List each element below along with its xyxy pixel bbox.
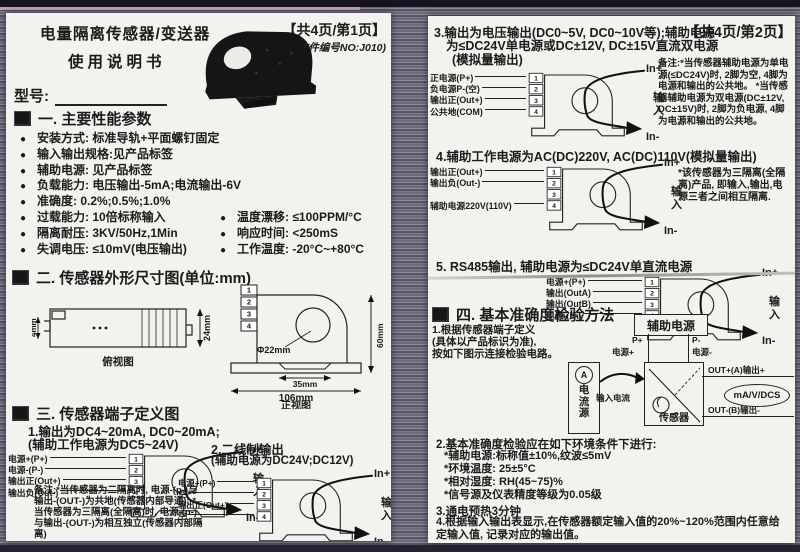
in-minus-label: In- <box>646 131 659 143</box>
accuracy-check-circuit: 辅助电源 P+ 电源+ P- 电源- A 电流源 输入电流 <box>568 314 794 432</box>
sensor-symbol-box: 传感器 <box>644 362 704 426</box>
pin-number: 1 <box>650 280 654 287</box>
terminal-row: 辅助电源220V(110V) <box>430 200 518 211</box>
bullet-icon: ● <box>220 229 237 240</box>
model-label: 型号: <box>14 85 49 106</box>
dim-4mm: 4mm <box>32 318 38 337</box>
bullet-icon: ● <box>20 134 37 145</box>
terminal-diagram-3: 正电源(P+) 负电源P-(空) 输出正(Out+) 公共地(COM) 1 2 … <box>430 68 674 154</box>
param-row: ●隔离耐压: 3KV/50Hz,1Min●响应时间: <250mS <box>20 224 388 240</box>
input-current-arrow <box>598 364 644 390</box>
check-condition: *信号源及仪表精度等级为0.05级 <box>444 489 611 502</box>
performance-parameter-list: ●安装方式: 标准导轨+平面螺钉固定 ●输入输出规格:见产品标签 ●辅助电源: … <box>20 129 388 255</box>
scan-pink-streak <box>0 7 360 10</box>
terminal-row: 输出正(Out+) <box>178 499 228 510</box>
section-marker-icon <box>12 270 29 285</box>
pin-number: 2 <box>552 181 556 188</box>
circuit-lead-left <box>648 334 649 362</box>
pin-number: 1 <box>262 481 266 488</box>
circuit-lead-right <box>688 334 689 362</box>
manual-page-1: 电量隔离传感器/变送器 使用说明书 【共4页/第1页】 (文件编号NO:J010… <box>6 13 391 541</box>
terminal-row: 空 <box>178 488 228 499</box>
manual-page-2: 3.输出为电压输出(DC0~5V, DC0~10V等);辅助电源 为≤DC24V… <box>428 16 795 543</box>
bullet-icon: ● <box>20 166 37 177</box>
param-row: ●准确度: 0.2%;0.5%;1.0% <box>20 192 388 208</box>
sensor-outline-drawing: 1 2 3 4 <box>500 68 650 154</box>
front-view-caption: 正视图 <box>281 399 311 409</box>
pin-number: 3 <box>650 302 654 309</box>
ammeter-icon: A <box>575 366 593 384</box>
param-text: 准确度: 0.2%;0.5%;1.0% <box>37 192 170 209</box>
scanned-manual: 电量隔离传感器/变送器 使用说明书 【共4页/第1页】 (文件编号NO:J010… <box>0 0 800 552</box>
pin-number: 2 <box>247 298 251 307</box>
param-row: ●安装方式: 标准导轨+平面螺钉固定 <box>20 129 388 145</box>
check-condition: *辅助电源:标称值±10%,纹波≤5mV <box>444 450 611 463</box>
in-minus-label: In- <box>664 225 677 237</box>
aux-power-box: 辅助电源 <box>634 314 708 336</box>
sensor-figure: 1 2 3 4 In+ 输入 In- <box>518 162 692 248</box>
wire-arrowhead <box>626 121 642 135</box>
param-row: ●输入输出规格:见产品标签 <box>20 145 388 161</box>
pin-number: 3 <box>534 98 538 105</box>
terminal-label: 电源+(P+) <box>178 477 215 489</box>
terminal-label: 公共地(COM) <box>430 105 483 118</box>
param-text: 辅助电源: 见产品标签 <box>37 161 152 178</box>
section3v-title-line3: (模拟量输出) <box>452 49 523 68</box>
check-step1-line3: 按如下图示连接检验电路。 <box>432 348 558 360</box>
input-label: 输入 <box>381 497 391 522</box>
param-text: 过载能力: 10倍标称输入 <box>37 208 220 225</box>
p-plus-label: P+ <box>632 335 643 345</box>
in-plus-label: In+ <box>374 468 390 480</box>
sensor-body <box>260 480 353 541</box>
param-text: 工作温度: -20°C~+80°C <box>237 240 364 257</box>
top-view-caption: 俯视图 <box>102 355 134 368</box>
terminal-label: 输出负(Out-) <box>430 176 480 189</box>
pin-number: 1 <box>247 286 251 295</box>
param-text: 失调电压: ≤10mV(电压输出) <box>37 240 220 257</box>
param-row: ●过载能力: 10倍标称输入●温度漂移: ≤100PPM/°C <box>20 208 388 224</box>
pin-number: 3 <box>247 310 251 319</box>
pin-number: 2 <box>650 291 654 298</box>
diagram2-subtitle: (辅助电源为DC24V;DC12V) <box>211 452 354 468</box>
section-marker-icon <box>14 111 31 126</box>
out-plus-label: OUT+(A)输出+ <box>708 364 765 376</box>
terminal-row: 输出负(Out-) <box>430 177 518 188</box>
sensor-figure: 1 2 3 4 In+ 输入 In- <box>500 68 674 154</box>
bullet-icon: ● <box>20 213 37 224</box>
bullet-icon: ● <box>20 197 37 208</box>
current-wire <box>603 165 662 222</box>
check-step1-line2: (具体以产品标识为准), <box>432 336 558 348</box>
dim-60mm: 60mm <box>375 323 385 348</box>
bullet-icon: ● <box>20 245 37 256</box>
terminal-diagram-4: 输出正(Out+) 输出负(Out-) 辅助电源220V(110V) 1 2 3… <box>430 162 692 248</box>
p-plus-sub-label: 电源+ <box>612 346 634 358</box>
dim-35mm: 35mm <box>293 379 318 389</box>
dimension-drawing-front-view: 1 2 3 4 Φ22mm 60mm 35mm 106mm 正视图 <box>221 281 391 409</box>
dim-24mm: 24mm <box>202 315 212 341</box>
pin-number: 4 <box>262 514 266 521</box>
output-line-minus <box>702 416 794 417</box>
param-text: 输入输出规格:见产品标签 <box>37 145 173 162</box>
pin-number: 3 <box>262 503 266 510</box>
input-current-label: 输入电流 <box>596 392 630 404</box>
bullet-icon: ● <box>220 213 237 224</box>
p-minus-sub-label: 电源- <box>692 346 712 358</box>
bullet-icon: ● <box>20 181 37 192</box>
hole-diameter-label: Φ22mm <box>257 345 290 355</box>
param-row: ●负载能力: 电压输出-5mA;电流输出-6V <box>20 176 388 192</box>
section2-heading: 二. 传感器外形尺寸图(单位:mm) <box>36 267 251 288</box>
check-condition: *环境温度: 25±5°C <box>444 463 611 476</box>
pin-number: 1 <box>134 457 138 464</box>
bullet-icon: ● <box>20 229 37 240</box>
bullet-icon: ● <box>220 245 237 256</box>
check-step1-line1: 1.根据传感器端子定义 <box>432 324 558 336</box>
model-blank-line <box>55 90 167 106</box>
in-minus-label: In- <box>374 536 387 541</box>
terminal-label: 空 <box>178 488 186 500</box>
section-marker-icon <box>432 307 449 322</box>
p-minus-label: P- <box>692 335 701 345</box>
pin-number: 2 <box>262 492 266 499</box>
terminal-label: 输出正(Out+) <box>178 499 228 511</box>
sensor-body <box>532 75 625 136</box>
scan-edge-bottom <box>0 545 800 552</box>
sensor-outline-drawing: 1 2 3 4 <box>518 162 668 248</box>
current-wire <box>313 476 372 533</box>
terminal-diagram-2: 电源+(P+) 空 输出正(Out+) 空 1 2 3 4 In+ 输入 In- <box>178 473 391 541</box>
dimension-drawing-top-view: 24mm 4mm 俯视图 <box>32 289 212 383</box>
scan-edge-top <box>0 0 800 7</box>
pin-number: 4 <box>552 203 556 210</box>
check-condition: *相对湿度: RH(45~75)% <box>444 476 611 489</box>
param-text: 温度漂移: ≤100PPM/°C <box>237 208 362 225</box>
param-row: ●失调电压: ≤10mV(电压输出)●工作温度: -20°C~+80°C <box>20 240 388 256</box>
section4-note: *该传感器为三隔离(全隔离)产品, 即输入,输出,电源三者之间相互隔离. <box>678 168 792 204</box>
current-source-label: 电流源 <box>578 385 591 420</box>
param-text: 响应时间: <250mS <box>237 224 338 241</box>
pin-number: 1 <box>552 170 556 177</box>
terminal-label: 空 <box>178 510 186 522</box>
bullet-icon: ● <box>20 150 37 161</box>
pin-number: 4 <box>534 109 538 116</box>
section1-heading: 一. 主要性能参数 <box>38 108 151 129</box>
section-marker-icon <box>12 406 29 421</box>
pin-number: 1 <box>534 76 538 83</box>
meter-oval: mA/V/DCS <box>724 384 790 407</box>
sensor-box-label: 传感器 <box>645 409 703 424</box>
terminal-label: 辅助电源220V(110V) <box>430 199 512 212</box>
wire-arrowhead <box>354 526 370 540</box>
terminal-row: 空 <box>178 511 228 522</box>
sensor-outline-drawing: 1 2 3 4 <box>228 473 378 541</box>
param-text: 负载能力: 电压输出-5mA;电流输出-6V <box>37 176 241 193</box>
section3v-note: 备注:*当传感器辅助电源为单电源(≤DC24V)时, 2脚为空, 4脚为电源和输… <box>658 58 792 127</box>
pin-number: 2 <box>534 87 538 94</box>
pin-number: 2 <box>134 468 138 475</box>
page-title-line2: 使用说明书 <box>68 50 166 72</box>
page-number-badge: 【共4页/第2页】 <box>685 21 792 42</box>
pin-number: 3 <box>552 192 556 199</box>
product-photo <box>178 21 330 113</box>
output-line-plus <box>702 376 794 377</box>
current-wire <box>585 71 644 128</box>
terminal-row: 公共地(COM) <box>430 106 500 117</box>
wire-arrowhead <box>644 215 660 229</box>
param-row: ●辅助电源: 见产品标签 <box>20 161 388 177</box>
param-text: 隔离耐压: 3KV/50Hz,1Min <box>37 224 220 241</box>
sensor-body <box>550 169 643 230</box>
param-text: 安装方式: 标准导轨+平面螺钉固定 <box>37 129 219 146</box>
check-step4: 4.根据输入输出表显示,在传感器额定输入值的20%~120%范围内任意给定输入值… <box>436 516 790 542</box>
terminal-row: 电源+(P+) <box>178 477 228 488</box>
sensor-figure: 1 2 3 4 In+ 输入 In- <box>228 473 391 541</box>
